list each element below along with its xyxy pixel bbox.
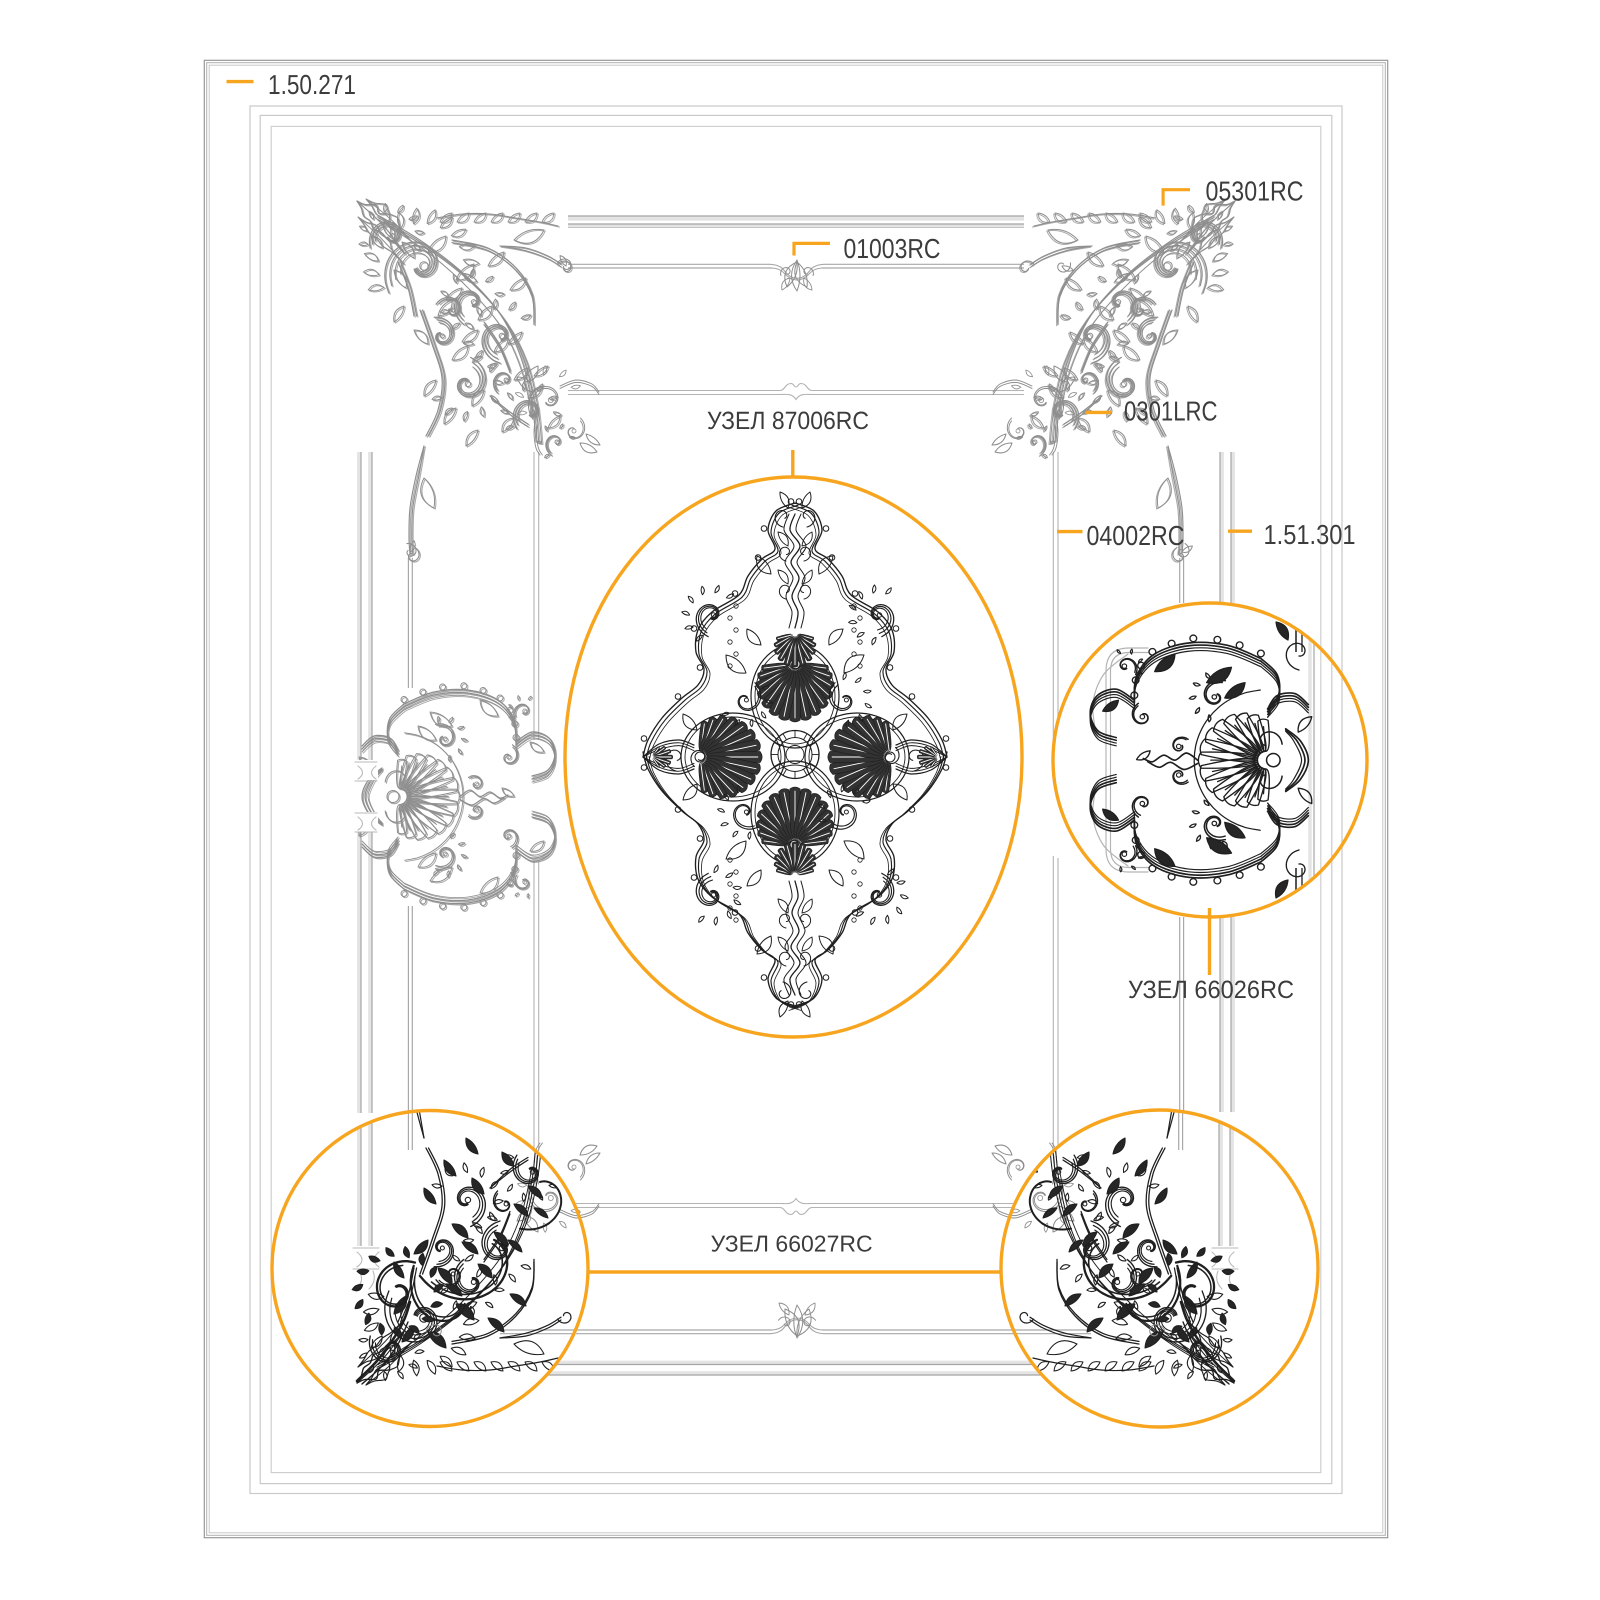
- svg-text:УЗЕЛ 87006RC: УЗЕЛ 87006RC: [707, 407, 869, 435]
- svg-text:1.51.301: 1.51.301: [1264, 519, 1356, 550]
- svg-text:04002RC: 04002RC: [1087, 520, 1185, 551]
- svg-text:01003RC: 01003RC: [844, 233, 941, 264]
- svg-text:УЗЕЛ 66027RC: УЗЕЛ 66027RC: [711, 1231, 873, 1257]
- svg-text:1.50.271: 1.50.271: [268, 69, 356, 100]
- svg-text:УЗЕЛ 66026RC: УЗЕЛ 66026RC: [1128, 976, 1294, 1004]
- svg-text:0301LRC: 0301LRC: [1124, 396, 1218, 427]
- svg-text:05301RC: 05301RC: [1206, 176, 1304, 207]
